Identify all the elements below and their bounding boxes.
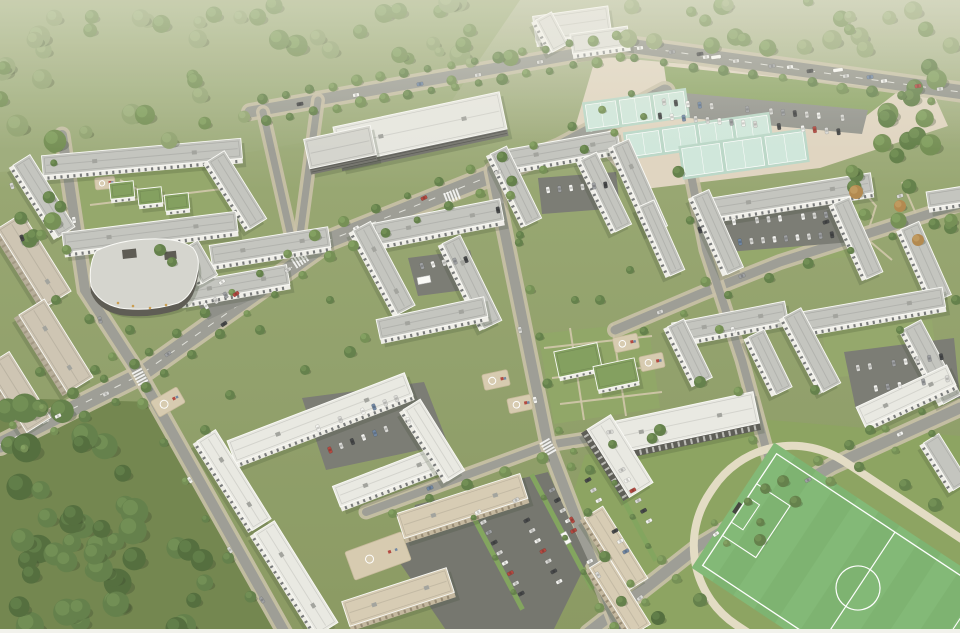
aerial-render-canvas — [0, 0, 960, 633]
frame-edge — [0, 629, 960, 633]
aerial-masterplan-render — [0, 0, 960, 633]
